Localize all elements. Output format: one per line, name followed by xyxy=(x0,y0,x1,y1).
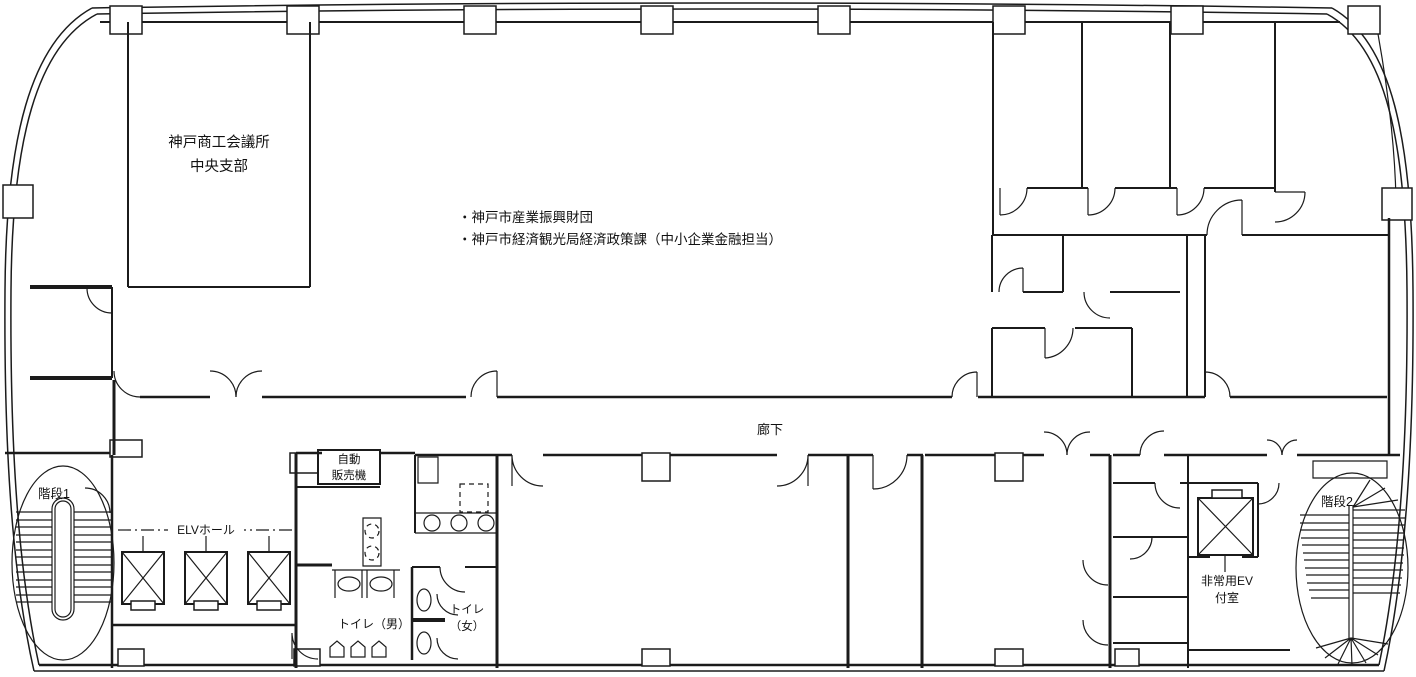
label-kcci-line2: 中央支部 xyxy=(190,158,248,175)
right-middle-rooms xyxy=(992,218,1389,455)
label-stairs-2: 階段2 xyxy=(1321,494,1353,509)
right-upper-rooms xyxy=(992,22,1389,235)
small-rooms-column xyxy=(1083,483,1188,645)
room-kcci xyxy=(128,22,310,287)
floor-plan-drawing: 神戸商工会議所 中央支部 ・神戸市産業振興財団 ・神戸市経済観光局経済政策課（中… xyxy=(0,0,1416,677)
elevator-hall xyxy=(112,521,318,659)
elevator-shafts xyxy=(122,536,290,610)
label-vending-line1: 自動 xyxy=(338,452,361,466)
building-outline xyxy=(5,3,1413,671)
left-small-rooms xyxy=(30,287,140,455)
bottom-band-partitions xyxy=(112,453,1188,668)
label-emergency-ev-line1: 非常用EV xyxy=(1201,574,1253,588)
label-toilet-women-line2: （女） xyxy=(450,619,485,633)
corridor-upper-wall xyxy=(140,371,1387,397)
label-vending-line2: 販売機 xyxy=(332,468,367,482)
label-kcci-line1: 神戸商工会議所 xyxy=(168,133,270,151)
label-stairs-1: 階段1 xyxy=(38,486,70,501)
toilet-men xyxy=(296,518,400,657)
floor-plan-canvas: 神戸商工会議所 中央支部 ・神戸市産業振興財団 ・神戸市経済観光局経済政策課（中… xyxy=(0,0,1416,677)
emergency-elevator-room xyxy=(1188,483,1290,650)
label-emergency-ev-line2: 付室 xyxy=(1215,590,1239,605)
corridor-lower-wall xyxy=(5,431,1400,489)
label-elv-hall: ELVホール xyxy=(177,523,235,537)
label-toilet-women-line1: トイレ xyxy=(450,604,485,616)
floor-plan-labels: 神戸商工会議所 中央支部 ・神戸市産業振興財団 ・神戸市経済観光局経済政策課（中… xyxy=(38,133,1353,633)
label-tenant-1: ・神戸市産業振興財団 xyxy=(458,209,593,225)
label-corridor: 廊下 xyxy=(757,422,783,437)
stairs-2 xyxy=(1296,461,1408,666)
label-toilet-men: トイレ（男） xyxy=(338,617,410,631)
label-tenant-2: ・神戸市経済観光局経済政策課（中小企業金融担当） xyxy=(458,231,782,247)
kitchenette xyxy=(415,455,497,533)
